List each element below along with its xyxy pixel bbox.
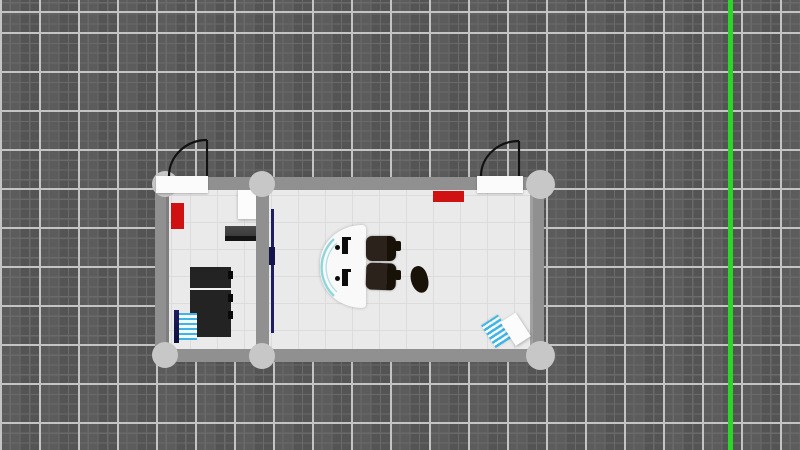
office-chair-headrest — [395, 270, 401, 280]
office-chair[interactable] — [366, 262, 397, 290]
office-chair[interactable] — [366, 236, 396, 261]
wall-joint[interactable] — [152, 342, 178, 368]
cabinet-divider-line — [190, 288, 231, 290]
red-box-left-wall[interactable] — [171, 203, 184, 229]
red-box-top-wall[interactable] — [433, 191, 464, 202]
cabinet-handle — [228, 311, 233, 319]
axis-guide-line — [728, 0, 733, 450]
wall-left[interactable] — [155, 177, 169, 362]
divider-rail-handle[interactable] — [269, 247, 275, 265]
desk-monitor — [342, 272, 348, 286]
door-left-leaf[interactable] — [156, 176, 208, 193]
wall-divider[interactable] — [256, 183, 269, 356]
wall-joint[interactable] — [526, 170, 555, 199]
desk-monitor — [342, 240, 348, 254]
ladder-rack-steps[interactable] — [179, 313, 197, 340]
wall-joint[interactable] — [249, 343, 275, 369]
divider-rail[interactable] — [271, 209, 274, 333]
wall-bottom[interactable] — [158, 349, 544, 362]
cabinet-handle — [228, 294, 233, 302]
wall-joint[interactable] — [249, 171, 275, 197]
cabinet-handle — [228, 271, 233, 279]
desk-item-dot — [335, 276, 340, 281]
desk-item-dot — [335, 245, 340, 250]
office-chair-headrest — [395, 241, 401, 251]
door-right-leaf[interactable] — [477, 176, 523, 193]
wall-joint[interactable] — [526, 341, 555, 370]
simulation-viewport[interactable] — [0, 0, 800, 450]
